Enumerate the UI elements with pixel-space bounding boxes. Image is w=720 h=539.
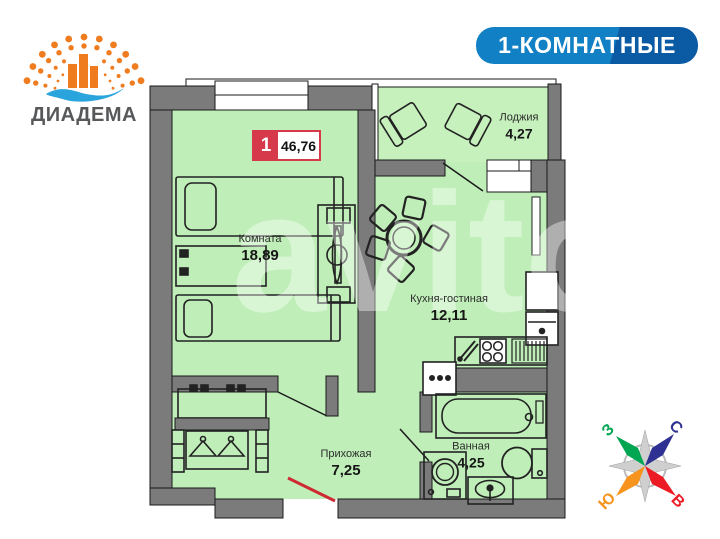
compass-label-north: С — [666, 417, 687, 438]
compass-label-west: З — [599, 421, 618, 440]
oven-icon — [526, 312, 558, 345]
loggia-window-icon — [487, 160, 531, 192]
rooms-count: 1 — [254, 132, 278, 159]
label-bathroom: Ванная 4,25 — [452, 440, 490, 471]
total-area: 46,76 — [278, 132, 319, 159]
fridge-icon — [423, 362, 456, 395]
compass-icon: С З Ю В — [596, 417, 688, 513]
label-hallway: Прихожая 7,25 — [321, 448, 372, 481]
compass-label-east: В — [668, 491, 688, 511]
page: ДИАДЕМА 1-КОМНАТНЫЕ — [0, 0, 720, 539]
window-icon — [215, 81, 308, 110]
label-room: Комната 18,89 — [238, 233, 281, 266]
stove-icon — [480, 339, 506, 363]
label-loggia: Лоджия 4,27 — [500, 111, 539, 142]
radiator-icon — [532, 197, 540, 255]
apartment-area-badge: 1 46,76 — [252, 130, 321, 161]
compass-label-south: Ю — [596, 490, 620, 514]
cabinet-icon — [526, 272, 558, 310]
label-kitchen: Кухня-гостиная 12,11 — [410, 293, 488, 326]
